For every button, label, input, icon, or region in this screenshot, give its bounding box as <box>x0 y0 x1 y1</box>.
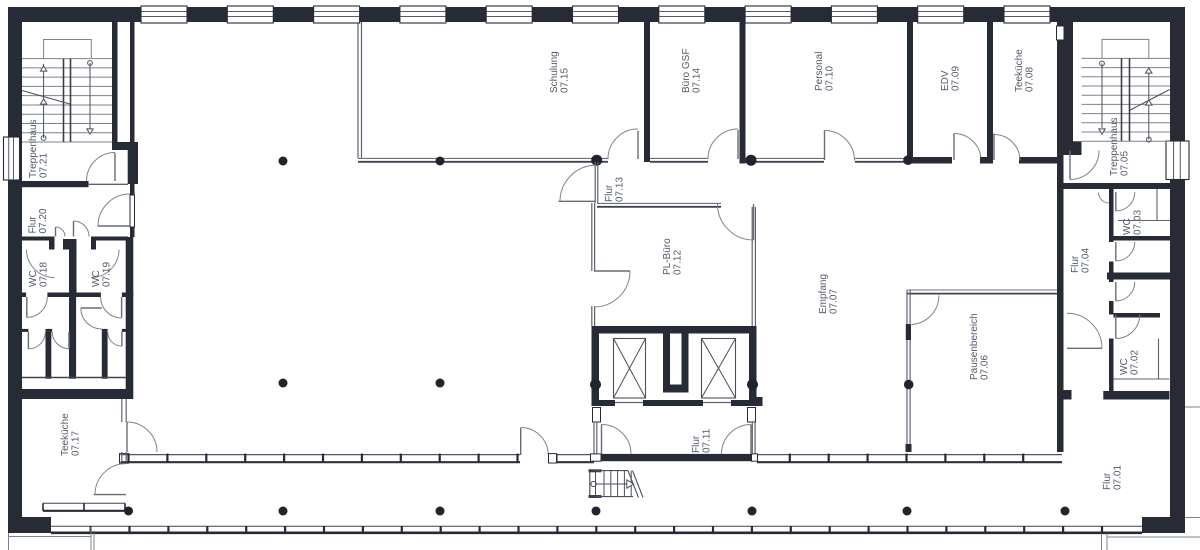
svg-text:07.08: 07.08 <box>1025 67 1036 92</box>
svg-text:Treppenhaus: Treppenhaus <box>1109 117 1120 176</box>
svg-text:Pausenbereich: Pausenbereich <box>969 313 980 380</box>
svg-text:07.14: 07.14 <box>692 68 703 93</box>
svg-text:PL-Büro: PL-Büro <box>662 238 673 275</box>
svg-text:07.21: 07.21 <box>39 153 50 178</box>
svg-text:07.01: 07.01 <box>1113 465 1124 490</box>
svg-text:07.15: 07.15 <box>560 68 571 93</box>
svg-text:07.06: 07.06 <box>980 355 991 380</box>
svg-text:Personal: Personal <box>814 52 825 91</box>
svg-text:07.03: 07.03 <box>1133 210 1144 235</box>
svg-text:WC: WC <box>1122 218 1133 235</box>
svg-text:Flur: Flur <box>1102 472 1113 490</box>
svg-text:07.18: 07.18 <box>39 262 50 287</box>
svg-text:07.11: 07.11 <box>702 428 713 453</box>
svg-text:Empfang: Empfang <box>818 274 829 314</box>
svg-text:Teeküche: Teeküche <box>60 413 71 456</box>
svg-text:07.09: 07.09 <box>951 66 962 91</box>
svg-text:07.02: 07.02 <box>1130 350 1141 375</box>
svg-text:Flur: Flur <box>28 216 39 234</box>
svg-text:WC: WC <box>91 270 102 287</box>
svg-text:Flur: Flur <box>1070 255 1081 273</box>
svg-text:Flur: Flur <box>691 435 702 453</box>
svg-text:Flur: Flur <box>604 184 615 202</box>
svg-text:07.05: 07.05 <box>1120 151 1131 176</box>
svg-text:EDV: EDV <box>940 70 951 91</box>
svg-text:07.10: 07.10 <box>825 66 836 91</box>
svg-text:07.13: 07.13 <box>615 177 626 202</box>
svg-text:WC: WC <box>28 270 39 287</box>
svg-text:07.20: 07.20 <box>38 208 49 233</box>
svg-text:07.07: 07.07 <box>829 289 840 314</box>
svg-text:07.04: 07.04 <box>1081 248 1092 273</box>
svg-text:Büro GSF: Büro GSF <box>681 49 692 93</box>
svg-text:Treppenhaus: Treppenhaus <box>28 119 39 178</box>
svg-text:WC: WC <box>1119 358 1130 375</box>
svg-text:07.12: 07.12 <box>673 250 684 275</box>
svg-text:Schulung: Schulung <box>549 51 560 93</box>
svg-text:07.17: 07.17 <box>71 431 82 456</box>
svg-text:Teeküche: Teeküche <box>1014 49 1025 92</box>
svg-text:07.19: 07.19 <box>102 262 113 287</box>
